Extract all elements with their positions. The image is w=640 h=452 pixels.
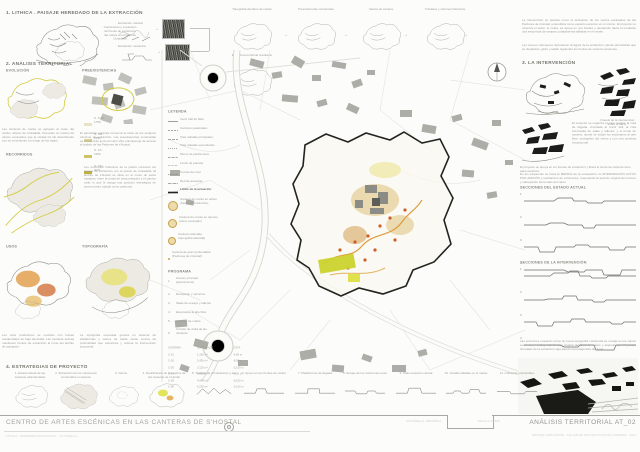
- strategy-item: 10. Gradas talladas en el marés: [444, 372, 488, 398]
- legend-line-label: Camí Vell de Maó: [180, 118, 219, 122]
- step4-sketch: [146, 380, 186, 410]
- strategy-profile-icon: [194, 384, 234, 398]
- legend-program-items: 1. Acceso principal · aparcamiento 2. Re…: [168, 277, 260, 344]
- manual-extraction-photo: [162, 19, 185, 39]
- strategy-caption: 9. Patio escénico central: [394, 372, 438, 378]
- arrow-icon: →: [403, 32, 408, 38]
- legend-table-row: C-03 3.120 m² -12,00 m: [168, 365, 256, 372]
- program-label: Circuito de visita de las canteras: [176, 328, 216, 336]
- section-number: 2: [520, 216, 522, 219]
- section-drawing-row: 1: [520, 193, 638, 207]
- legend-program-row: 2. Recepción y servicios: [168, 293, 260, 301]
- era-row: S. XVIII · 1750: [84, 117, 118, 133]
- legend-quarry-row: Cantera de marés en desuso (vacío excava…: [168, 216, 260, 232]
- legend-line-row: Curvas de nivel: [168, 171, 260, 179]
- legend-limit-row: Límite de la actuación: [168, 188, 260, 196]
- section-profile: [524, 193, 636, 207]
- north-arrow-icon: [488, 63, 506, 81]
- legend-limit-label: Límite de la actuación: [180, 188, 219, 192]
- step3-caption: 3. Vacíos: [102, 372, 140, 380]
- program-label: Acceso principal · aparcamiento: [176, 277, 216, 285]
- arrow-icon: →: [463, 32, 468, 38]
- program-number: 6.: [168, 332, 172, 336]
- legend-table-row: C-01 1.250 m² -4,00 m: [168, 352, 256, 359]
- cell-cantera: C-01: [168, 353, 181, 356]
- cell-cantera: C-03: [168, 367, 181, 370]
- section-number: 1: [520, 193, 522, 196]
- map-evolucion: [2, 74, 76, 124]
- section-number: 3: [520, 314, 522, 317]
- intervention-axon-sketch: [596, 66, 638, 118]
- arrow-icon: →: [343, 32, 348, 38]
- signature-scribble: [600, 399, 634, 413]
- program-label: Recepción y servicios: [176, 293, 216, 297]
- quarry-sketch: [30, 20, 102, 66]
- strategy-profile-icon: [244, 384, 284, 398]
- legend-line-label: Muros de piedra seca: [180, 153, 219, 157]
- author-line: LÍTHICA · PEDRERES DE S'HOSTAL · CIUTADE…: [6, 435, 166, 443]
- map-recorridos: [2, 159, 78, 237]
- step1-sketch: [12, 382, 50, 410]
- legend-title: LEYENDA: [168, 110, 259, 114]
- project-title: CENTRO DE ARTES ESCÉNICAS EN LAS CANTERA…: [6, 419, 242, 426]
- th-cantera: CANTERA: [168, 347, 181, 350]
- legend-line-items: Camí Vell de Maó Caminos peatonales Vías…: [168, 118, 260, 187]
- strategy-profile-icon: [497, 384, 537, 398]
- section-profile: [524, 291, 636, 305]
- legend-line-row: Muros de piedra seca: [168, 153, 260, 161]
- sheet-footnote: MÁSTER HABILITANTE · TALLER DE PROYECTO …: [476, 434, 636, 442]
- cell-cota: -12,00 m: [233, 367, 244, 370]
- legend-table-row: C-02 2.430 m² -8,50 m: [168, 358, 256, 365]
- line-swatch: [168, 147, 178, 150]
- legend-line-row: Límite de parcela: [168, 162, 260, 170]
- program-label: Jardines de marés: [176, 320, 216, 324]
- legend-line-label: Vías rodadas secundarias: [180, 144, 219, 148]
- section-drawing-row: 3: [520, 239, 638, 253]
- program-number: 5.: [168, 320, 172, 324]
- legend-line-label: Caminos peatonales: [180, 127, 219, 131]
- para-usos: Los usos productivos se mezclan con bols…: [2, 334, 74, 365]
- quarry-circle-icon: [168, 237, 176, 245]
- strategy-profile-icon: [446, 384, 486, 398]
- legend-line-label: Vías rodadas principales: [180, 136, 219, 140]
- topband-sketch: [359, 18, 403, 54]
- legend-line-label: Red de acequias: [180, 180, 219, 184]
- legend-line-label: Límite de parcela: [180, 162, 219, 166]
- sections-header-b: SECCIONES DE LA INTERVENCIÓN: [520, 261, 636, 267]
- section-drawing-row: 2: [520, 291, 638, 305]
- legend-quarry-row: Cantera de marés en activo (frente de ex…: [168, 198, 260, 214]
- presentation-board: 1. LITHICA . PAISAJE HEREDADO DE LA EXTR…: [0, 0, 640, 452]
- section-profile: [524, 268, 636, 282]
- map-legend: LEYENDA Camí Vell de Maó Caminos peatona…: [168, 110, 260, 391]
- quarry-circle-icon: [168, 201, 178, 211]
- topband-caption: Vacíos de cantera: [355, 8, 407, 12]
- cell-superficie: 2.430 m²: [197, 360, 213, 363]
- section2-title: 2. ANÁLISIS TERRITORIAL: [6, 62, 126, 68]
- topband-caption: Trazados y caminos históricos: [419, 8, 471, 12]
- cell-cota: -4,00 m: [233, 353, 244, 356]
- line-swatch: [168, 173, 178, 176]
- map-usos: [2, 251, 76, 331]
- section-number: 2: [520, 291, 522, 294]
- legend-program-title: PROGRAMA: [168, 270, 259, 274]
- topband-sketch: [423, 18, 467, 54]
- program-number: 3.: [168, 302, 172, 306]
- topband-item: Trazados y caminos históricos: [419, 8, 471, 54]
- step3-sketch: [106, 382, 140, 410]
- topband-caption: Preexistencias construidas: [290, 8, 342, 12]
- legend-program-row: 4. Escenarios al aire libre: [168, 311, 260, 319]
- legend-table-header: CANTERA SUPERFICIE COTA: [168, 345, 256, 352]
- legend-line-row: Red de acequias: [168, 180, 260, 188]
- para-topografia: La topografía excavada genera un sistema…: [80, 334, 156, 365]
- titlebar-rule-left: [0, 415, 447, 416]
- arrow-icon: →: [283, 32, 288, 38]
- strategy-icons-row: 5. Trazado de circulaciones y accesos 6.…: [192, 372, 522, 398]
- section-drawing-row: 1: [520, 268, 638, 282]
- strategy-caption: 11. Cubiertas practicables: [495, 372, 539, 378]
- limit-swatch: [168, 191, 178, 194]
- line-swatch: [168, 129, 178, 132]
- manual-tools-sketch: [118, 29, 152, 42]
- program-number: 2.: [168, 293, 172, 297]
- strategy-caption: 5. Trazado de circulaciones y accesos: [192, 372, 236, 378]
- program-label: Salas de ensayo y talleres: [176, 302, 216, 306]
- section1-title: 1. LITHICA . PAISAJE HEREDADO DE LA EXTR…: [6, 11, 206, 17]
- section4-title: 4. ESTRATEGIAS DE PROYECTO: [6, 365, 146, 371]
- section-profile: [524, 239, 636, 253]
- sheet-title: ANÁLISIS TERRITORIAL AT_02: [436, 419, 636, 426]
- legend-line-row: Vías rodadas principales: [168, 136, 260, 144]
- legend-line-row: Camí Vell de Maó: [168, 118, 260, 126]
- legend-line-label: Curvas de nivel: [180, 171, 219, 175]
- legend-program-row: 6. Circuito de visita de las canteras: [168, 328, 260, 344]
- program-number: 4.: [168, 311, 172, 315]
- section-number: 1: [520, 268, 522, 271]
- legend-quarry-items: Cantera de marés en activo (frente de ex…: [168, 198, 260, 266]
- strategy-caption: 6. Apoyo en los frentes de cantera: [242, 372, 286, 378]
- strategy-item: 7. Plataformas de llegada: [293, 372, 337, 398]
- program-label: Escenarios al aire libre: [176, 311, 216, 315]
- strategy-item: 9. Patio escénico central: [394, 372, 438, 398]
- topband-item: Vacíos de cantera: [355, 8, 407, 54]
- bracket-line-vertical: [209, 28, 210, 51]
- strategy-profile-icon: [295, 384, 335, 398]
- s3-para2: Los nuevos volúmenes reproducen la lógic…: [522, 44, 636, 60]
- cell-cota: -8,50 m: [233, 360, 244, 363]
- th-cota: COTA: [233, 347, 244, 350]
- section-profile: [524, 216, 636, 230]
- subtitle-rule: [4, 431, 310, 432]
- strategy-profile-icon: [345, 384, 385, 398]
- legend-program-row: 3. Salas de ensayo y talleres: [168, 302, 260, 310]
- era-label: S. XVIII · 1750: [94, 117, 106, 125]
- section-profile: [524, 314, 636, 328]
- legend-line-row: Vías rodadas secundarias: [168, 144, 260, 152]
- legend-line-row: Caminos peatonales: [168, 127, 260, 135]
- arrow-icon: →: [154, 26, 159, 32]
- strategy-item: 5. Trazado de circulaciones y accesos: [192, 372, 236, 398]
- strategy-profile-icon: [396, 384, 436, 398]
- cell-cantera: C-02: [168, 360, 181, 363]
- strategy-item: 6. Apoyo en los frentes de cantera: [242, 372, 286, 398]
- map-topografia: [80, 251, 156, 331]
- legend-program-row: 5. Jardines de marés: [168, 320, 260, 328]
- sections-header-a: SECCIONES DEL ESTADO ACTUAL: [520, 186, 636, 192]
- program-number: 1.: [168, 280, 172, 284]
- intervention-plan-sketch: [520, 69, 590, 117]
- legend-program-row: 1. Acceso principal · aparcamiento: [168, 277, 260, 293]
- line-swatch: [168, 156, 178, 159]
- bracket-line-top: [190, 28, 209, 29]
- quarry-circle-icon: [168, 219, 177, 228]
- section-drawing-row: 2: [520, 216, 638, 230]
- topband-caption: Topografía del llano de marés: [226, 8, 278, 12]
- topband-sketch: [294, 18, 338, 54]
- strategy-caption: 10. Gradas talladas en el marés: [444, 372, 488, 378]
- s3-para3: El conjunto se organiza en tres niveles:…: [572, 122, 636, 169]
- cell-superficie: 3.120 m²: [197, 367, 213, 370]
- strategy-caption: 8. Encaje de los volúmenes escénicos: [343, 372, 387, 378]
- legend-quarry-row: Cantera de gran profundidad (Pedreres de…: [168, 251, 260, 267]
- legend-quarry-row: Cantera rellenada (topografía alterada): [168, 233, 260, 249]
- strategy-item: 8. Encaje de los volúmenes escénicos: [343, 372, 387, 398]
- para-recorridos: Los recorridos históricos de la piedra c…: [84, 166, 156, 213]
- section-drawing-row: 3: [520, 314, 638, 328]
- topband-item: Topografía del llano de marés: [226, 8, 278, 54]
- line-swatch: [168, 164, 178, 167]
- strategy-item: 11. Cubiertas practicables: [495, 372, 539, 398]
- strategy-caption: 7. Plataformas de llegada: [293, 372, 337, 378]
- titlebar-rule-right: [492, 415, 640, 416]
- quarry-circle-icon: [168, 258, 170, 260]
- th-superficie: SUPERFICIE: [197, 347, 213, 350]
- topband-item: Preexistencias construidas: [290, 8, 342, 54]
- para-preexistencias: El parcelario agrícola conserva la traza…: [80, 132, 156, 163]
- section-number: 3: [520, 239, 522, 242]
- step2-sketch: [56, 380, 100, 412]
- line-swatch: [168, 182, 178, 185]
- intervention-detail-sketch: [520, 122, 566, 166]
- legend-quarry-label: Cantera de gran profundidad (Pedreres de…: [172, 251, 211, 259]
- era-swatch: [84, 123, 92, 126]
- line-swatch: [168, 120, 178, 123]
- cell-superficie: 1.250 m²: [197, 353, 213, 356]
- line-swatch: [168, 138, 178, 141]
- legend-quarry-label: Cantera rellenada (topografía alterada): [178, 233, 217, 241]
- legend-quarry-label: Cantera de marés en desuso (vacío excava…: [179, 216, 218, 224]
- topband-sketch: [230, 18, 274, 54]
- legend-quarry-label: Cantera de marés en activo (frente de ex…: [180, 198, 219, 206]
